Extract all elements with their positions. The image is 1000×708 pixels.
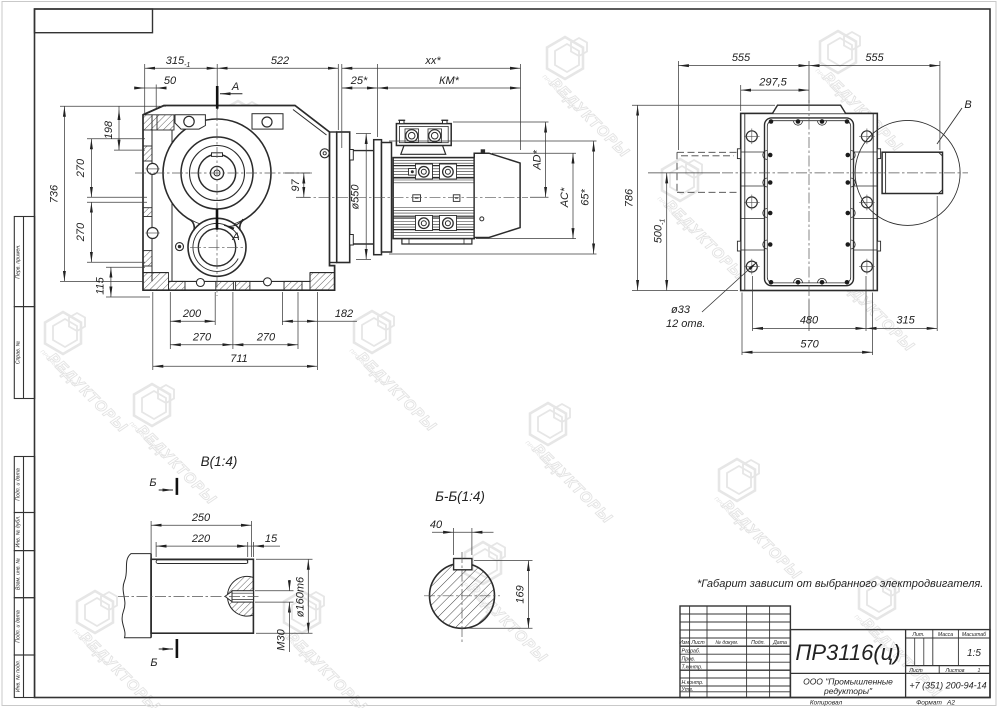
svg-text:40: 40 <box>430 519 443 531</box>
svg-text:220: 220 <box>191 533 211 545</box>
svg-text:Масса: Масса <box>938 632 953 638</box>
svg-text:555: 555 <box>732 52 751 64</box>
svg-text:97: 97 <box>290 179 302 192</box>
svg-text:711: 711 <box>230 353 248 365</box>
svg-text:736: 736 <box>49 184 61 203</box>
svg-text:Пров.: Пров. <box>682 657 696 663</box>
svg-text:редукторы": редукторы" <box>823 686 873 696</box>
svg-text:Дата: Дата <box>772 640 787 646</box>
svg-text:297,5: 297,5 <box>758 77 787 89</box>
svg-text:Лист: Лист <box>690 640 705 646</box>
svg-text:50: 50 <box>164 75 177 87</box>
svg-text:182: 182 <box>335 308 353 320</box>
svg-text:Изм.: Изм. <box>679 640 690 646</box>
svg-text:522: 522 <box>271 55 289 67</box>
svg-text:270: 270 <box>75 222 87 242</box>
svg-text:М30: М30 <box>275 628 287 650</box>
svg-text:480: 480 <box>800 315 819 327</box>
svg-text:Б: Б <box>149 477 156 489</box>
svg-text:250: 250 <box>191 512 211 524</box>
svg-text:1: 1 <box>978 668 981 674</box>
svg-text:Лит.: Лит. <box>911 632 924 638</box>
svg-text:*Габарит зависит от выбранного: *Габарит зависит от выбранного электродв… <box>697 578 983 590</box>
svg-text:ø160m6: ø160m6 <box>294 576 306 617</box>
svg-text:Т.контр.: Т.контр. <box>682 665 703 671</box>
svg-text:115: 115 <box>95 276 107 294</box>
svg-text:270: 270 <box>75 158 87 178</box>
svg-text:№ докум.: № докум. <box>715 640 738 646</box>
svg-text:Подп. и дата: Подп. и дата <box>16 610 22 643</box>
svg-text:Формат: Формат <box>916 700 942 707</box>
svg-text:Подп.: Подп. <box>751 640 765 646</box>
svg-text:А: А <box>231 231 239 243</box>
svg-text:570: 570 <box>800 339 819 351</box>
svg-text:Листов: Листов <box>945 668 965 674</box>
svg-text:Справ. №: Справ. № <box>16 340 22 364</box>
svg-text:200: 200 <box>182 308 202 320</box>
svg-text:Взам. инв. №: Взам. инв. № <box>16 558 22 590</box>
svg-text:Перв. примен.: Перв. примен. <box>16 244 22 278</box>
svg-text:Масштаб: Масштаб <box>962 632 987 638</box>
svg-text:12 отв.: 12 отв. <box>666 318 705 330</box>
svg-text:AC*: AC* <box>559 187 571 208</box>
svg-text:Лист: Лист <box>908 668 923 674</box>
svg-text:555: 555 <box>865 52 884 64</box>
svg-text:ø33: ø33 <box>671 304 691 316</box>
svg-text:xx*: xx* <box>424 55 441 67</box>
svg-text:198: 198 <box>103 120 115 139</box>
svg-text:Б-Б(1:4): Б-Б(1:4) <box>435 489 485 504</box>
svg-text:270: 270 <box>192 332 212 344</box>
svg-text:Инв. № подл.: Инв. № подл. <box>16 660 22 692</box>
svg-text:А: А <box>231 81 239 93</box>
svg-text:А2: А2 <box>946 700 955 707</box>
svg-text:1:5: 1:5 <box>967 648 981 659</box>
svg-text:ø550: ø550 <box>350 184 362 210</box>
svg-text:15: 15 <box>265 533 278 545</box>
svg-text:786: 786 <box>624 188 636 207</box>
svg-text:270: 270 <box>256 332 276 344</box>
svg-text:В: В <box>964 99 971 111</box>
svg-text:25*: 25* <box>350 75 368 87</box>
svg-text:+7 (351) 200-94-14: +7 (351) 200-94-14 <box>909 681 986 691</box>
svg-text:315: 315 <box>896 315 915 327</box>
svg-text:ООО "Промышленные: ООО "Промышленные <box>803 677 893 687</box>
svg-text:169: 169 <box>514 585 526 603</box>
svg-text:КМ*: КМ* <box>439 75 460 87</box>
svg-text:Утв.: Утв. <box>682 687 694 693</box>
svg-text:Разраб.: Разраб. <box>682 649 701 655</box>
svg-text:Инв. № дубл.: Инв. № дубл. <box>16 516 22 548</box>
svg-text:В(1:4): В(1:4) <box>201 454 238 469</box>
svg-text:ПР3116(ц): ПР3116(ц) <box>795 640 900 665</box>
svg-text:Подп. и дата: Подп. и дата <box>16 468 22 501</box>
svg-text:65*: 65* <box>580 189 592 206</box>
svg-text:Б: Б <box>150 657 157 669</box>
svg-text:Н.контр.: Н.контр. <box>682 680 704 686</box>
svg-text:AD*: AD* <box>532 150 544 171</box>
svg-text:Копировал: Копировал <box>810 700 843 707</box>
